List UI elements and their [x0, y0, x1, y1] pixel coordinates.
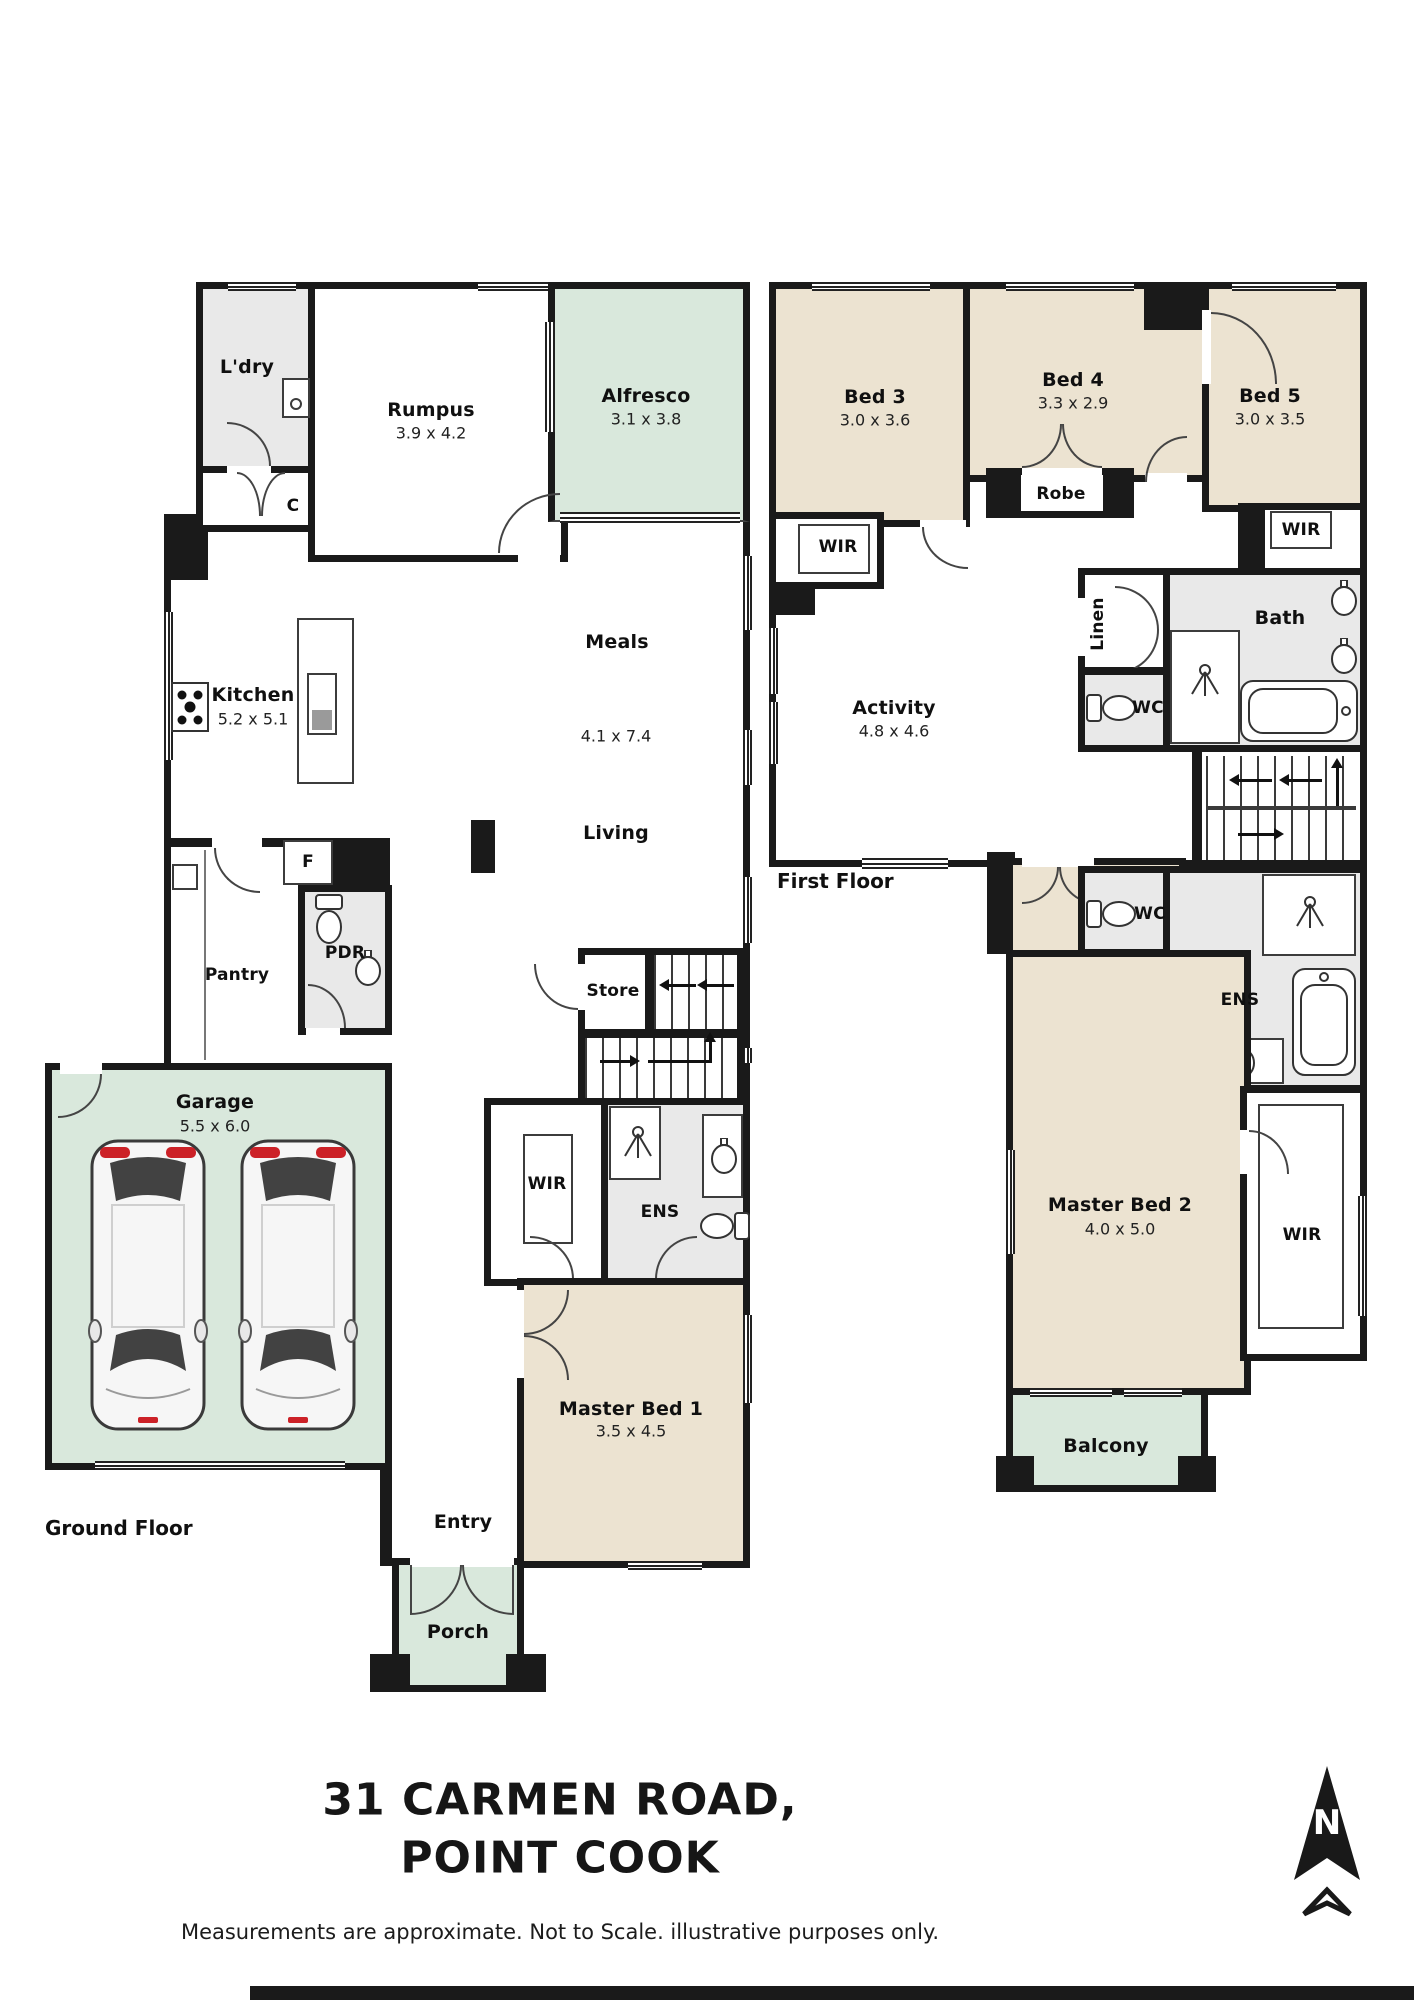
window: [769, 628, 778, 694]
window: [812, 282, 930, 291]
door-opening: [920, 520, 966, 527]
stair-arrow: [709, 1040, 712, 1062]
room-label-powder: PDR: [325, 943, 365, 963]
wall: [1144, 282, 1202, 330]
address-title-line1: 31 CARMEN ROAD,: [322, 1775, 797, 1826]
room-label-entry: Entry: [434, 1511, 492, 1533]
room-label-wir-bed3: WIR: [819, 537, 858, 557]
window: [743, 730, 752, 785]
room-dims-bed4: 3.3 x 2.9: [1038, 394, 1109, 413]
stair-arrow: [1238, 833, 1274, 836]
cupboard: [172, 864, 198, 890]
room-label-kitchen: Kitchen: [212, 684, 295, 706]
cooktop: [171, 682, 209, 732]
room-label-rumpus: Rumpus: [387, 399, 475, 421]
window: [628, 1561, 702, 1570]
door-opening: [1240, 1130, 1249, 1174]
door-leaf: [512, 1565, 514, 1613]
shower-head-icon: [1185, 660, 1225, 700]
room-dims-garage: 5.5 x 6.0: [180, 1117, 251, 1136]
window: [1006, 282, 1134, 291]
room-label-porch: Porch: [427, 1621, 489, 1643]
sink-basin: [312, 710, 332, 730]
garage-door: [95, 1461, 345, 1470]
window: [743, 1048, 752, 1063]
first-floor-label: First Floor: [777, 869, 894, 893]
room-label-linen: Linen: [1088, 597, 1108, 650]
stair-arrow: [1336, 766, 1339, 806]
room-dims-rumpus: 3.9 x 4.2: [396, 424, 467, 443]
window: [743, 877, 752, 943]
room-label-living: Living: [583, 822, 649, 844]
wall: [1238, 503, 1258, 575]
address-title-line2: POINT COOK: [400, 1833, 719, 1884]
room-label-master1: Master Bed 1: [559, 1398, 703, 1420]
disclaimer-text: Measurements are approximate. Not to Sca…: [181, 1920, 939, 1944]
stair-arrow: [1288, 779, 1322, 782]
room-label-closet: C: [287, 496, 300, 516]
room-label-master2: Master Bed 2: [1048, 1194, 1192, 1216]
stair-arrow: [668, 984, 696, 987]
stair-arrow-head: [1274, 828, 1284, 840]
wall: [645, 955, 654, 1036]
room-label-bed4: Bed 4: [1042, 369, 1104, 391]
stair-arrow-head: [1331, 758, 1343, 768]
window: [743, 556, 752, 630]
door-opening: [227, 466, 271, 474]
shower-head-icon: [1290, 892, 1330, 932]
room-label-wir-master2: WIR: [1283, 1225, 1322, 1245]
stair-arrow-head: [1229, 774, 1239, 786]
washing-machine-door: [290, 398, 302, 410]
wall: [333, 840, 390, 890]
balcony-pillar: [996, 1456, 1034, 1492]
bathtub: [1292, 968, 1356, 1076]
wall: [743, 1063, 750, 1103]
room-label-meals: Meals: [585, 631, 648, 653]
window: [478, 282, 548, 291]
room-label-bath: Bath: [1255, 607, 1306, 629]
stair-landing: [1206, 806, 1356, 810]
window: [769, 702, 778, 764]
balcony-pillar: [1178, 1456, 1216, 1492]
stair-arrow: [600, 1060, 630, 1063]
room-label-activity: Activity: [852, 697, 936, 719]
stairs: [654, 955, 737, 1029]
stairs: [585, 1038, 737, 1099]
room-dims-activity: 4.8 x 4.6: [859, 722, 930, 741]
stair-arrow: [648, 1060, 712, 1063]
stair-arrow-head: [659, 979, 669, 991]
room-label-wc-upper: WC: [1132, 698, 1164, 718]
window: [1006, 1150, 1015, 1254]
sink: [1328, 638, 1360, 676]
room-label-store: Store: [587, 981, 640, 1001]
floorplan-page: L'dry C Rumpus 3.9 x 4.2 Alfresco 3.1 x …: [0, 0, 1414, 2000]
sink: [1328, 580, 1360, 618]
room-label-pantry: Pantry: [205, 965, 269, 985]
toilet: [313, 894, 345, 946]
room-master-bed-2: [1006, 950, 1251, 1395]
door-opening: [306, 1028, 340, 1035]
door-opening: [1202, 310, 1211, 384]
room-label-ens-ground: ENS: [641, 1202, 680, 1222]
door-opening: [1022, 468, 1102, 477]
window: [1358, 1196, 1367, 1316]
room-dims-kitchen: 5.2 x 5.1: [218, 710, 289, 729]
bathtub: [1240, 680, 1358, 742]
stair-arrow-head: [1279, 774, 1289, 786]
door-opening: [578, 964, 585, 1010]
window: [1232, 282, 1336, 291]
shower-head-icon: [618, 1122, 658, 1162]
door-opening: [60, 1063, 102, 1074]
room-label-wc-lower: WC: [1134, 904, 1166, 924]
room-dims-living: 4.1 x 7.4: [581, 727, 652, 746]
room-dims-bed5: 3.0 x 3.5: [1235, 410, 1306, 429]
room-dims-master1: 3.5 x 4.5: [596, 1422, 667, 1441]
column: [471, 820, 495, 873]
wall: [164, 838, 212, 847]
toilet: [1086, 692, 1138, 724]
stair-arrow-head: [630, 1055, 640, 1067]
room-label-bed5: Bed 5: [1239, 385, 1301, 407]
room-dims-alfresco: 3.1 x 3.8: [611, 410, 682, 429]
porch-pillar: [370, 1654, 410, 1692]
ground-floor-label: Ground Floor: [45, 1516, 193, 1540]
room-dims-master2: 4.0 x 5.0: [1085, 1220, 1156, 1239]
room-label-wir-bed5: WIR: [1282, 520, 1321, 540]
wall: [986, 468, 1014, 518]
door-leaf: [410, 1565, 412, 1613]
window: [545, 322, 555, 432]
stair-arrow: [706, 984, 734, 987]
room-label-garage: Garage: [176, 1091, 254, 1113]
porch-pillar: [506, 1654, 546, 1692]
window: [1030, 1388, 1112, 1397]
room-label-ens-first: ENS: [1221, 990, 1260, 1010]
stair-arrow: [1238, 779, 1272, 782]
north-compass-icon: N: [1282, 1762, 1372, 1922]
window-sliding-alfresco: [560, 512, 740, 523]
pantry-shelf: [204, 850, 206, 1060]
room-label-laundry: L'dry: [220, 356, 274, 378]
window: [743, 1315, 752, 1403]
room-label-bed3: Bed 3: [844, 386, 906, 408]
wall: [1192, 745, 1202, 867]
room-label-robe: Robe: [1036, 484, 1085, 504]
car: [238, 1135, 358, 1435]
room-label-fridge: F: [302, 852, 314, 872]
window: [228, 282, 296, 291]
stair-arrow-head: [704, 1032, 716, 1042]
wall: [769, 585, 815, 615]
sliding-door: [1124, 1388, 1182, 1397]
room-label-wir-ground: WIR: [528, 1174, 567, 1194]
toilet: [698, 1210, 750, 1242]
sink: [708, 1138, 740, 1176]
room-dims-bed3: 3.0 x 3.6: [840, 411, 911, 430]
bottom-accent-bar: [250, 1986, 1414, 2000]
door-opening: [518, 555, 560, 562]
window: [862, 858, 948, 869]
toilet: [1086, 898, 1138, 930]
room-label-alfresco: Alfresco: [602, 385, 691, 407]
wall: [380, 1470, 392, 1566]
wall: [1110, 468, 1134, 518]
car: [88, 1135, 208, 1435]
stair-arrow-head: [697, 979, 707, 991]
room-label-balcony: Balcony: [1063, 1435, 1148, 1457]
compass-n: N: [1313, 1803, 1341, 1843]
door-opening: [517, 1290, 524, 1378]
door-opening: [1078, 598, 1087, 656]
